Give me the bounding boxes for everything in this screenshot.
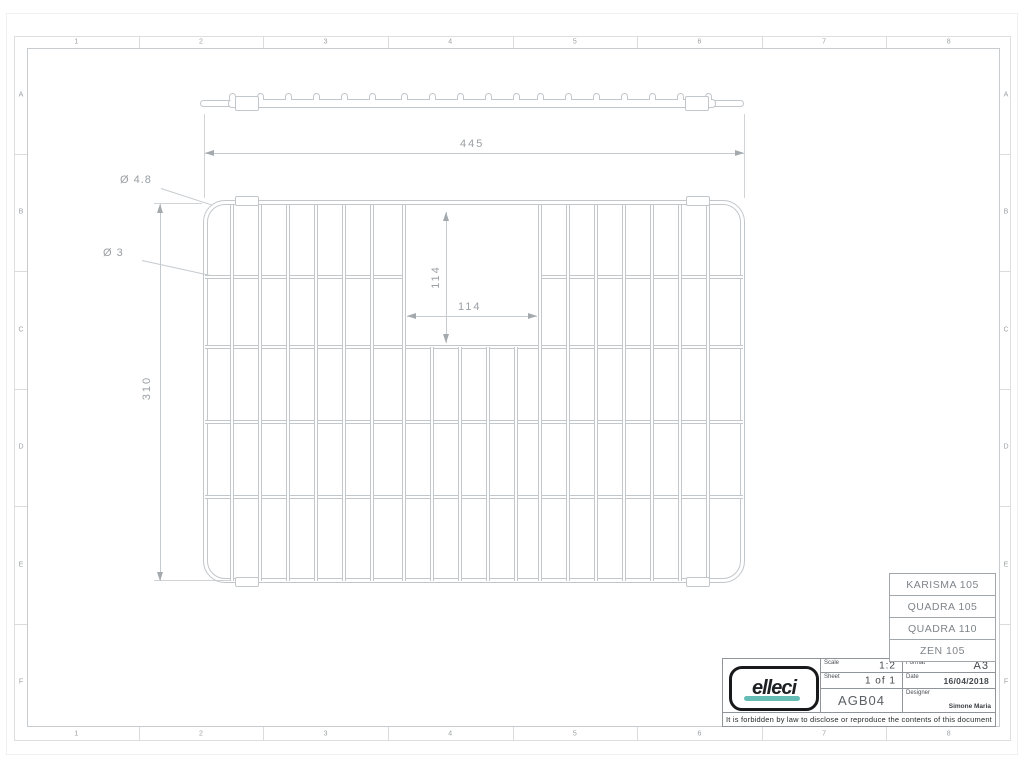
model-row: ZEN 105 <box>889 639 996 662</box>
grid-vertical-wire <box>594 205 598 581</box>
side-view-wire-loop <box>593 93 600 100</box>
side-view-wire-loop <box>285 93 292 100</box>
border-column-label: 5 <box>573 39 577 46</box>
arrowhead <box>735 150 744 156</box>
grid-vertical-wire <box>538 205 542 581</box>
grid-vertical-wire-short <box>514 347 518 581</box>
border-column-tick <box>263 36 264 48</box>
designer-label: Designer <box>906 690 930 696</box>
border-row-label: D <box>18 444 23 451</box>
border-column-tick <box>513 727 514 741</box>
border-column-label: 6 <box>697 731 701 738</box>
grid-foot-top-right <box>686 196 710 206</box>
border-row-label: F <box>1004 679 1008 686</box>
diameter-label: Ø 4.8 <box>120 174 152 186</box>
border-column-label: 3 <box>324 39 328 46</box>
side-view-wire-loop <box>537 93 544 100</box>
border-row-tick <box>1000 389 1011 390</box>
arrowhead <box>407 313 416 319</box>
side-view-wire-loop <box>649 93 656 100</box>
grid-vertical-wire <box>706 205 710 581</box>
grid-horizontal-wire <box>540 275 743 279</box>
grid-vertical-wire <box>402 205 406 581</box>
side-view-wire-loop <box>401 93 408 100</box>
border-column-label: 6 <box>697 39 701 46</box>
grid-vertical-wire <box>342 205 346 581</box>
model-row: QUADRA 110 <box>889 617 996 640</box>
border-row-tick <box>1000 624 1011 625</box>
grid-vertical-wire <box>258 205 262 581</box>
date-value: 16/04/2018 <box>943 676 989 686</box>
side-view-wire-loop <box>429 93 436 100</box>
border-column-tick <box>388 727 389 741</box>
drawing-code-cell: AGB04 <box>820 688 903 713</box>
border-column-tick <box>886 36 887 48</box>
grid-vertical-wire <box>314 205 318 581</box>
arrowhead <box>157 572 163 581</box>
border-row-tick <box>1000 154 1011 155</box>
border-row-label: C <box>1003 326 1008 333</box>
side-view-wire-loop <box>513 93 520 100</box>
border-column-label: 7 <box>822 731 826 738</box>
border-column-label: 4 <box>448 39 452 46</box>
dimension-line <box>407 316 537 317</box>
border-column-tick <box>762 36 763 48</box>
grid-vertical-wire <box>650 205 654 581</box>
border-column-label: 7 <box>822 39 826 46</box>
sheet-label: Sheet <box>824 674 840 680</box>
arrowhead <box>205 150 214 156</box>
scale-label: Scale <box>824 660 839 666</box>
border-column-label: 8 <box>947 39 951 46</box>
sheet-cell: Sheet 1 of 1 <box>820 672 903 689</box>
border-column-label: 3 <box>324 731 328 738</box>
border-row-label: C <box>18 326 23 333</box>
arrowhead <box>443 334 449 343</box>
grid-horizontal-wire <box>205 275 404 279</box>
extension-line <box>204 114 205 198</box>
border-row-tick <box>14 271 27 272</box>
arrowhead <box>443 212 449 221</box>
border-column-tick <box>513 36 514 48</box>
side-view-wire-loop <box>313 93 320 100</box>
side-view-wire-loop <box>341 93 348 100</box>
extension-line <box>744 114 745 198</box>
border-row-tick <box>14 506 27 507</box>
border-row-tick <box>14 624 27 625</box>
border-column-tick <box>388 36 389 48</box>
logo-text: elleci <box>752 677 796 700</box>
date-cell: Date 16/04/2018 <box>902 672 996 689</box>
grid-vertical-wire <box>370 205 374 581</box>
border-row-tick <box>1000 506 1011 507</box>
sheet-value: 1 of 1 <box>865 675 896 686</box>
border-row-label: A <box>1004 91 1009 98</box>
border-column-label: 2 <box>199 731 203 738</box>
border-row-label: D <box>1003 444 1008 451</box>
border-column-tick <box>637 727 638 741</box>
border-row-tick <box>14 389 27 390</box>
side-view-wire-loop <box>457 93 464 100</box>
dimension-line <box>205 153 744 154</box>
dimension-value: 445 <box>460 138 484 150</box>
border-column-label: 1 <box>74 39 78 46</box>
border-column-label: 4 <box>448 731 452 738</box>
border-column-label: 8 <box>947 731 951 738</box>
grid-vertical-wire-short <box>486 347 490 581</box>
designer-name: Simone Maria <box>949 703 991 710</box>
border-row-label: A <box>19 91 24 98</box>
elleci-logo: elleci <box>729 666 819 711</box>
side-view-wire-loop <box>677 93 684 100</box>
grid-foot-bottom-left <box>235 577 259 587</box>
border-column-tick <box>139 36 140 48</box>
dimension-line <box>160 204 161 581</box>
side-view-left-foot <box>235 96 259 111</box>
arrowhead <box>528 313 537 319</box>
technical-drawing-sheet: 1122334455667788AABBCCDDEEFF 445 310 <box>0 0 1024 768</box>
grid-vertical-wire <box>286 205 290 581</box>
border-row-label: B <box>1004 209 1009 216</box>
border-column-label: 2 <box>199 39 203 46</box>
border-column-tick <box>637 36 638 48</box>
side-view-wire-loop <box>485 93 492 100</box>
dimension-value: 310 <box>141 373 153 403</box>
grid-vertical-wire <box>230 205 234 581</box>
arrowhead <box>157 204 163 213</box>
side-view-wire-loop <box>621 93 628 100</box>
side-view-bar <box>228 99 716 108</box>
border-row-label: B <box>19 209 24 216</box>
border-row-label: E <box>1004 561 1009 568</box>
border-row-label: F <box>19 679 23 686</box>
model-row: QUADRA 105 <box>889 595 996 618</box>
border-column-tick <box>139 727 140 741</box>
side-view-wire-loop <box>565 93 572 100</box>
side-view-right-foot <box>685 96 709 111</box>
grid-vertical-wire <box>622 205 626 581</box>
border-row-tick <box>14 154 27 155</box>
grid-vertical-wire-short <box>430 347 434 581</box>
grid-foot-bottom-right <box>686 577 710 587</box>
grid-vertical-wire <box>678 205 682 581</box>
border-row-tick <box>1000 271 1011 272</box>
model-row: KARISMA 105 <box>889 573 996 596</box>
border-column-tick <box>263 727 264 741</box>
grid-vertical-wire <box>566 205 570 581</box>
dimension-line <box>446 212 447 343</box>
side-view-wire-loop <box>369 93 376 100</box>
border-row-label: E <box>19 561 24 568</box>
border-column-tick <box>886 727 887 741</box>
compatible-models-table: KARISMA 105QUADRA 105QUADRA 110ZEN 105 <box>889 573 996 662</box>
grid-vertical-wire-short <box>458 347 462 581</box>
dimension-value: 114 <box>458 301 482 313</box>
date-label: Date <box>906 674 919 680</box>
grid-foot-top-left <box>235 196 259 206</box>
disclaimer-cell: It is forbidden by law to disclose or re… <box>722 712 996 727</box>
border-column-label: 5 <box>573 731 577 738</box>
diameter-label: Ø 3 <box>103 247 124 259</box>
border-column-tick <box>762 727 763 741</box>
designer-cell: Designer Simone Maria <box>902 688 996 713</box>
dimension-value: 114 <box>430 262 442 292</box>
border-column-label: 1 <box>74 731 78 738</box>
